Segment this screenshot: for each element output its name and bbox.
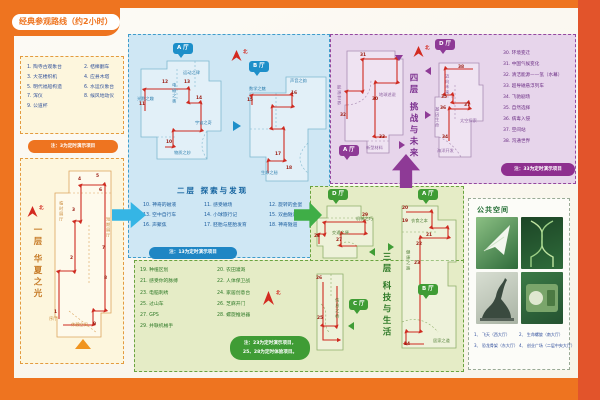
route-point-number: 23 [414, 262, 420, 266]
exhibit-item: 34. 飞驰剧场 [503, 95, 575, 101]
floor1-timed-note-badge: 注：3为定时演示项目 [28, 140, 118, 153]
area-label: 序厅 [49, 317, 57, 321]
exhibit-item: 9. 公道杯 [27, 104, 79, 110]
route-point-number: 21 [426, 234, 432, 238]
public-space-captions: 1、 飞天（西大厅）2、 生命螺旋（南大厅）3、 恐龙骨架（东大厅）4、 创业广… [474, 333, 571, 349]
floor2-title: 二层 探索与发现 [177, 185, 248, 196]
exhibit-item: 17. 胚胎与胚胎发育 [204, 223, 264, 229]
route-point-number: 35 [441, 96, 447, 100]
floor3-hall-c-map: 2625信息之桥 [313, 268, 349, 356]
route-point-number: 10 [166, 141, 172, 145]
route-point-number: 20 [402, 207, 408, 211]
floor4-timed-note-badge: 注：33为定时演示项目 [501, 163, 575, 176]
route-point-number: 36 [440, 107, 446, 111]
exhibit-item: 18. 神奇隧道 [269, 223, 325, 229]
route-point-number: 13 [184, 81, 190, 85]
hall-bubble-b: B 厅 [249, 61, 269, 72]
route-point-number: 27 [336, 239, 342, 243]
exhibit-item: 30. 环境变迁 [503, 51, 575, 57]
floor2-hall-a-map: 1011121314光影之趣电磁之奥运动之律宇宙之奇物质之妙 [137, 59, 237, 174]
route-point-number: 25 [317, 317, 323, 321]
area-label: 数学之魅 [249, 87, 266, 91]
floor3-note-line1: 注：23为定时演示项目， [230, 339, 310, 348]
frame-left-bar [0, 0, 14, 400]
exhibit-item: 28. 螺旋推进器 [217, 313, 287, 319]
route-point-number: 19 [402, 220, 408, 224]
area-label: 临时展厅 [59, 201, 63, 222]
exhibit-item: 13. 空中自行车 [143, 213, 199, 219]
exhibit-item: 7. 浑仪 [27, 94, 79, 100]
hall-bubble-a: A 厅 [173, 43, 193, 54]
exhibit-item: 20. 农田灌溉 [217, 268, 287, 274]
area-label: 迈向未来 [445, 74, 449, 95]
route-point-number: 6 [99, 189, 102, 193]
north-compass-icon: 北 [262, 290, 281, 306]
exhibit-item: 12. 旋转的金蛋 [269, 203, 325, 209]
floor1-map-panel: 北 一层 华夏之光 123456789序厅休憩空间临时展厅短期展厅 [20, 158, 124, 364]
area-label: 物质之妙 [174, 151, 191, 155]
hall-bubble-c: C 厅 [349, 299, 368, 310]
exhibit-item: 31. 中国气候变化 [503, 62, 575, 68]
page-title: 经典参观路线（约2小时） [12, 14, 120, 30]
route-point-number: 34 [442, 136, 448, 140]
hall-bubble-d: D 厅 [435, 39, 455, 50]
floor1-map: 123456789序厅休憩空间临时展厅短期展厅 [49, 165, 117, 357]
route-connector-left-icon [369, 248, 375, 256]
area-label: 短期展厅 [106, 217, 110, 238]
floor4-title: 四层 挑战与未来 [407, 73, 419, 159]
photo-dna-spiral-sculpture [521, 217, 563, 269]
area-label: 光影之趣 [137, 97, 154, 101]
route-point-number: 33 [379, 136, 385, 140]
route-connector-right-icon [425, 111, 431, 119]
photo-paper-plane-sculpture [476, 217, 518, 269]
floor2-hall-b-map: 15161718数学之魅声音之韵生命之秘 [246, 73, 330, 185]
area-label: 交通之便 [332, 231, 349, 235]
floor3-hall-a-b-map: 201921222324衣食之本健康之路居家之道 [394, 202, 460, 352]
route-point-number: 38 [458, 66, 464, 70]
area-label: 电磁之奥 [172, 83, 176, 104]
route-point-number: 9 [93, 323, 96, 327]
public-space-photos [476, 217, 563, 324]
hall-bubble-d: D 厅 [328, 189, 348, 200]
hall-bubble-b: B 厅 [418, 284, 438, 295]
floor3-note-line2: 25、28为定时体验项目。 [230, 348, 310, 357]
exhibit-item: 21. 感受你的脉搏 [140, 279, 212, 285]
route-connector-right-icon [388, 243, 394, 251]
north-compass-icon: 北 [231, 49, 248, 62]
area-label: 太空探索 [460, 119, 477, 123]
area-label: 能源世界 [337, 85, 341, 106]
area-label: 运动之律 [183, 71, 200, 75]
hall-bubble-a: A 厅 [339, 145, 359, 156]
route-point-number: 37 [464, 104, 470, 108]
area-label: 宇宙之奇 [195, 121, 212, 125]
route-point-number: 2 [70, 257, 73, 261]
exhibit-item: 36. 病毒入侵 [503, 117, 575, 123]
floor3-timed-note-badge: 注：23为定时演示项目， 25、28为定时体验项目。 [230, 336, 310, 360]
route-point-number: 24 [404, 343, 410, 347]
exhibit-item: 6. 水运仪象台 [84, 85, 124, 91]
area-label: 地球述说 [379, 93, 396, 97]
caption-item: 2、 生命螺旋（南大厅） [519, 333, 571, 338]
route-point-number: 31 [360, 54, 366, 58]
route-point-number: 12 [162, 81, 168, 85]
public-space-title: 公共空间 [477, 205, 509, 215]
exhibit-item: 19. 种植区划 [140, 268, 212, 274]
route-connector-right-icon [399, 141, 405, 149]
floor4-panel: 31303233能源世界地球述说新型材料 A 厅 北 四层 挑战与未来 D 厅 … [330, 34, 576, 184]
route-map-poster: 经典参观路线（约2小时） 1. 陶寺古观象台2. 桔槔翻车3. 大花楼织机4. … [0, 0, 600, 400]
route-point-number: 17 [275, 153, 281, 157]
area-label: 海洋开发 [437, 149, 454, 153]
route-point-number: 8 [104, 277, 107, 281]
exhibit-item: 1. 陶寺古观象台 [27, 65, 79, 71]
floor4-exhibit-list: 30. 环境变迁31. 中国气候变化32. 清洁能源——氢（水幕）33. 超导磁… [503, 51, 575, 145]
floor2-panel: A 厅 北 B 厅 1011121314光影之趣电磁之奥运动之律宇宙之奇物质之妙… [128, 34, 330, 258]
route-point-number: 7 [102, 247, 105, 251]
exhibit-item: 37. 空间站 [503, 128, 575, 134]
route-point-number: 16 [291, 92, 297, 96]
exhibit-item: 8. 候风地动仪 [84, 94, 124, 100]
route-point-number: 32 [340, 114, 346, 118]
floor2-timed-note-badge: 注：13为定时演示项目 [149, 247, 237, 259]
area-label: 衣食之本 [411, 219, 428, 223]
exhibit-item: 2. 桔槔翻车 [84, 65, 124, 71]
exhibit-item: 22. 人体保卫战 [217, 279, 287, 285]
exhibit-item: 16. 声聚焦 [143, 223, 199, 229]
floor4-hall-d-map: 3835363734迈向未来基因生命太空探索海洋开发 [431, 57, 487, 165]
exhibit-item: 29. 并联机械手 [140, 324, 212, 330]
caption-item: 4、 创业广场（二层中央大厅） [519, 344, 571, 349]
route-point-number: 22 [416, 243, 422, 247]
route-point-number: 28 [314, 235, 320, 239]
exhibit-item: 14. 小球旅行记 [204, 213, 264, 219]
route-connector-down-icon [395, 55, 403, 61]
north-compass-icon: 北 [413, 45, 430, 58]
route-point-number: 5 [96, 175, 99, 179]
exhibit-item: 38. 沟通世界 [503, 139, 575, 145]
area-label: 机械之巧 [356, 217, 373, 221]
route-connector-left-icon [348, 322, 354, 330]
public-space-panel: 公共空间 [468, 198, 570, 370]
route-point-number: 26 [316, 277, 322, 281]
exhibit-item: 27. GPS [140, 313, 212, 319]
caption-item: 3、 恐龙骨架（东大厅） [474, 344, 514, 349]
route-point-number: 18 [286, 167, 292, 171]
area-label: 信息之桥 [335, 298, 339, 319]
route-point-number: 11 [139, 103, 145, 107]
exhibit-item: 10. 神奇的磁液 [143, 203, 199, 209]
photo-plaza-mural [521, 272, 563, 324]
exhibit-item: 33. 超导磁悬浮列车 [503, 84, 575, 90]
route-point-number: 30 [372, 98, 378, 102]
exhibit-item: 11. 感受磁场 [204, 203, 264, 209]
hall-connector-arrow-icon [233, 121, 241, 131]
area-label: 新型材料 [366, 146, 383, 150]
exhibit-item: 25. 过山车 [140, 302, 212, 308]
exhibit-item: 5. 明代福船构造 [27, 85, 79, 91]
exhibit-item: 23. 电脑刺绣 [140, 291, 212, 297]
floor1-exhibit-list: 1. 陶寺古观象台2. 桔槔翻车3. 大花楼织机4. 应县木塔5. 明代福船构造… [27, 65, 124, 110]
floor1-list-panel: 1. 陶寺古观象台2. 桔槔翻车3. 大花楼织机4. 应县木塔5. 明代福船构造… [20, 56, 124, 134]
exhibit-item: 32. 清洁能源——氢（水幕） [503, 73, 575, 79]
exhibit-item: 3. 大花楼织机 [27, 75, 79, 81]
area-label: 健康之路 [406, 250, 410, 271]
area-label: 休憩空间 [71, 323, 88, 327]
route-point-number: 15 [247, 99, 253, 103]
route-connector-left-icon [425, 67, 431, 75]
exhibit-item: 4. 应县木塔 [84, 75, 124, 81]
route-point-number: 4 [78, 178, 81, 182]
frame-right-bar [578, 0, 600, 400]
area-label: 生命之秘 [261, 171, 278, 175]
hall-bubble-a: A 厅 [418, 189, 438, 200]
photo-dinosaur-skeleton [476, 272, 518, 324]
route-point-number: 3 [72, 209, 75, 213]
north-compass-icon: 北 [27, 205, 44, 218]
floor1-title: 一层 华夏之光 [31, 225, 43, 300]
route-point-number: 1 [54, 311, 57, 315]
entrance-triangle-icon [75, 339, 91, 349]
area-label: 基因生命 [435, 107, 439, 128]
route-point-number: 14 [196, 97, 202, 101]
area-label: 居家之道 [433, 339, 450, 343]
floor3-title: 三层 科技与生活 [380, 252, 392, 338]
frame-bottom-bar [0, 378, 600, 400]
area-label: 声音之韵 [290, 79, 307, 83]
exhibit-item: 35. 自然选择 [503, 106, 575, 112]
caption-item: 1、 飞天（西大厅） [474, 333, 514, 338]
